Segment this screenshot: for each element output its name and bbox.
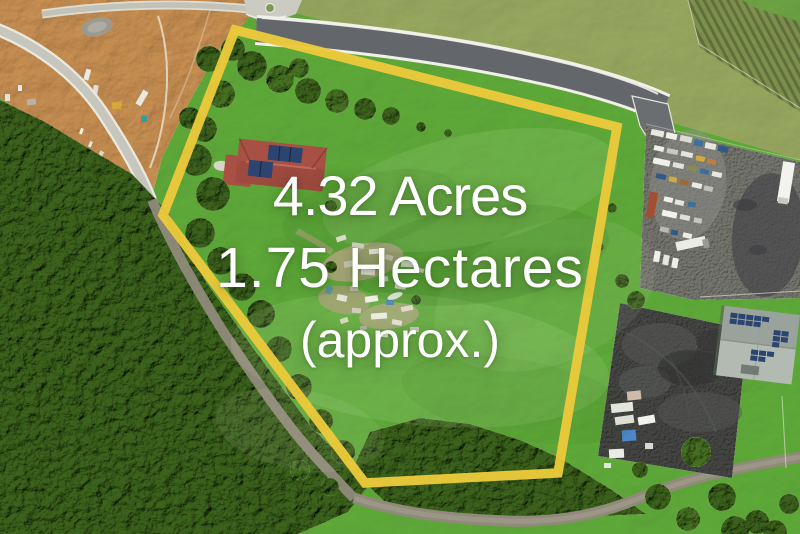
aerial-scene	[0, 0, 800, 534]
warehouse	[713, 305, 800, 384]
property-aerial-photo: 4.32 Acres 1.75 Hectares (approx.)	[0, 0, 800, 534]
traffic-island	[266, 4, 275, 13]
